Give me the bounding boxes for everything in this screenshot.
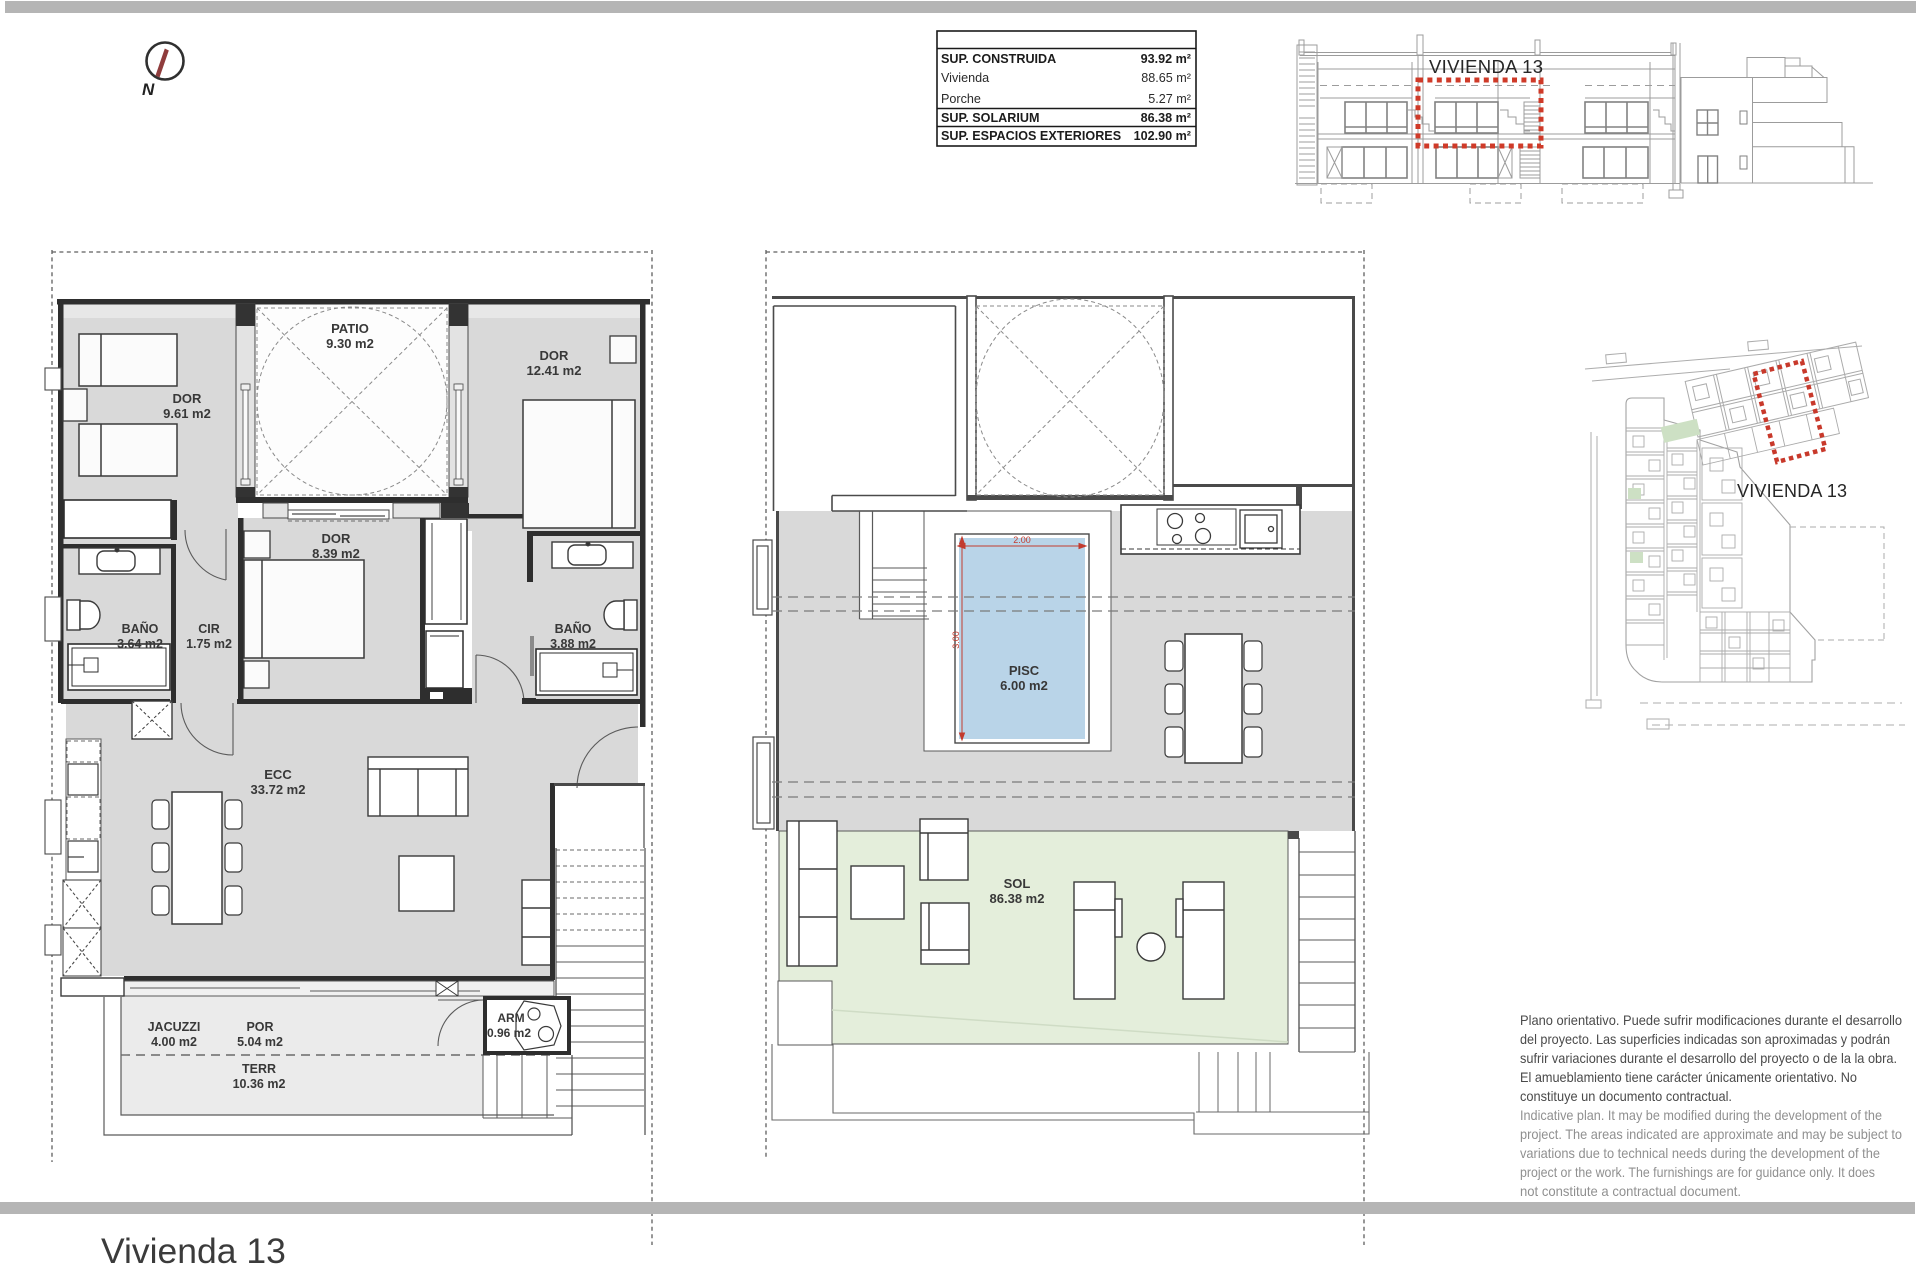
svg-text:BAÑO: BAÑO [555, 621, 592, 636]
svg-text:VIVIENDA 13: VIVIENDA 13 [1737, 481, 1847, 501]
svg-text:SUP. ESPACIOS EXTERIORES: SUP. ESPACIOS EXTERIORES [941, 129, 1121, 143]
svg-text:3.64 m2: 3.64 m2 [117, 637, 163, 651]
svg-text:4.00 m2: 4.00 m2 [151, 1035, 197, 1049]
svg-text:SUP. SOLARIUM: SUP. SOLARIUM [941, 111, 1039, 125]
svg-text:PISC: PISC [1009, 663, 1040, 678]
svg-text:PATIO: PATIO [331, 321, 369, 336]
svg-text:1.75 m2: 1.75 m2 [186, 637, 232, 651]
svg-text:93.92 m²: 93.92 m² [1141, 52, 1191, 66]
svg-text:Porche: Porche [941, 92, 981, 106]
svg-text:del proyecto. Las superficies: del proyecto. Las superficies indicadas … [1520, 1032, 1890, 1047]
svg-text:9.30 m2: 9.30 m2 [326, 336, 374, 351]
svg-text:ARM: ARM [497, 1011, 524, 1025]
svg-text:TERR: TERR [242, 1062, 276, 1076]
svg-text:Vivienda 13: Vivienda 13 [101, 1231, 286, 1271]
svg-text:6.00 m2: 6.00 m2 [1000, 678, 1048, 693]
svg-text:8.39 m2: 8.39 m2 [312, 546, 360, 561]
svg-text:0.96 m2: 0.96 m2 [487, 1026, 531, 1040]
svg-text:Plano orientativo. Puede sufri: Plano orientativo. Puede sufrir modifica… [1520, 1013, 1902, 1028]
svg-text:Indicative plan. It may be mod: Indicative plan. It may be modified duri… [1520, 1108, 1882, 1123]
svg-text:3.88 m2: 3.88 m2 [550, 637, 596, 651]
svg-text:not constitute a contractual d: not constitute a contractual document. [1520, 1184, 1741, 1199]
svg-text:2.00: 2.00 [1013, 535, 1031, 545]
svg-text:JACUZZI: JACUZZI [148, 1020, 201, 1034]
svg-text:N: N [142, 80, 155, 99]
svg-text:86.38 m²: 86.38 m² [1141, 111, 1191, 125]
svg-text:5.27 m²: 5.27 m² [1148, 92, 1191, 106]
svg-text:ECC: ECC [264, 767, 292, 782]
svg-text:sufrir variaciones durante el: sufrir variaciones durante el desarrollo… [1520, 1051, 1897, 1066]
svg-text:VIVIENDA 13: VIVIENDA 13 [1429, 56, 1543, 77]
svg-text:project. The areas indicated a: project. The areas indicated are approxi… [1520, 1127, 1902, 1142]
svg-text:10.36 m2: 10.36 m2 [233, 1077, 286, 1091]
svg-text:SUP. CONSTRUIDA: SUP. CONSTRUIDA [941, 52, 1056, 66]
svg-text:variations due to technical ne: variations due to technical needs during… [1520, 1146, 1880, 1161]
svg-text:DOR: DOR [173, 391, 203, 406]
svg-text:5.04 m2: 5.04 m2 [237, 1035, 283, 1049]
svg-text:9.61 m2: 9.61 m2 [163, 406, 211, 421]
svg-text:88.65 m²: 88.65 m² [1141, 71, 1191, 85]
svg-text:El amueblamiento tiene carácte: El amueblamiento tiene carácter únicamen… [1520, 1070, 1857, 1085]
svg-text:102.90 m²: 102.90 m² [1134, 129, 1191, 143]
svg-text:DOR: DOR [322, 531, 352, 546]
svg-text:project or the work. The furni: project or the work. The furnishings are… [1520, 1165, 1875, 1180]
svg-text:Vivienda: Vivienda [941, 71, 989, 85]
svg-text:CIR: CIR [198, 622, 220, 636]
svg-text:12.41 m2: 12.41 m2 [527, 363, 582, 378]
svg-text:POR: POR [246, 1020, 273, 1034]
svg-text:constituye un documento contra: constituye un documento contractual. [1520, 1089, 1732, 1104]
svg-text:SOL: SOL [1004, 876, 1031, 891]
svg-text:86.38 m2: 86.38 m2 [990, 891, 1045, 906]
svg-text:DOR: DOR [540, 348, 570, 363]
svg-text:3.00: 3.00 [951, 631, 961, 649]
svg-text:BAÑO: BAÑO [122, 621, 159, 636]
svg-text:33.72 m2: 33.72 m2 [251, 782, 306, 797]
